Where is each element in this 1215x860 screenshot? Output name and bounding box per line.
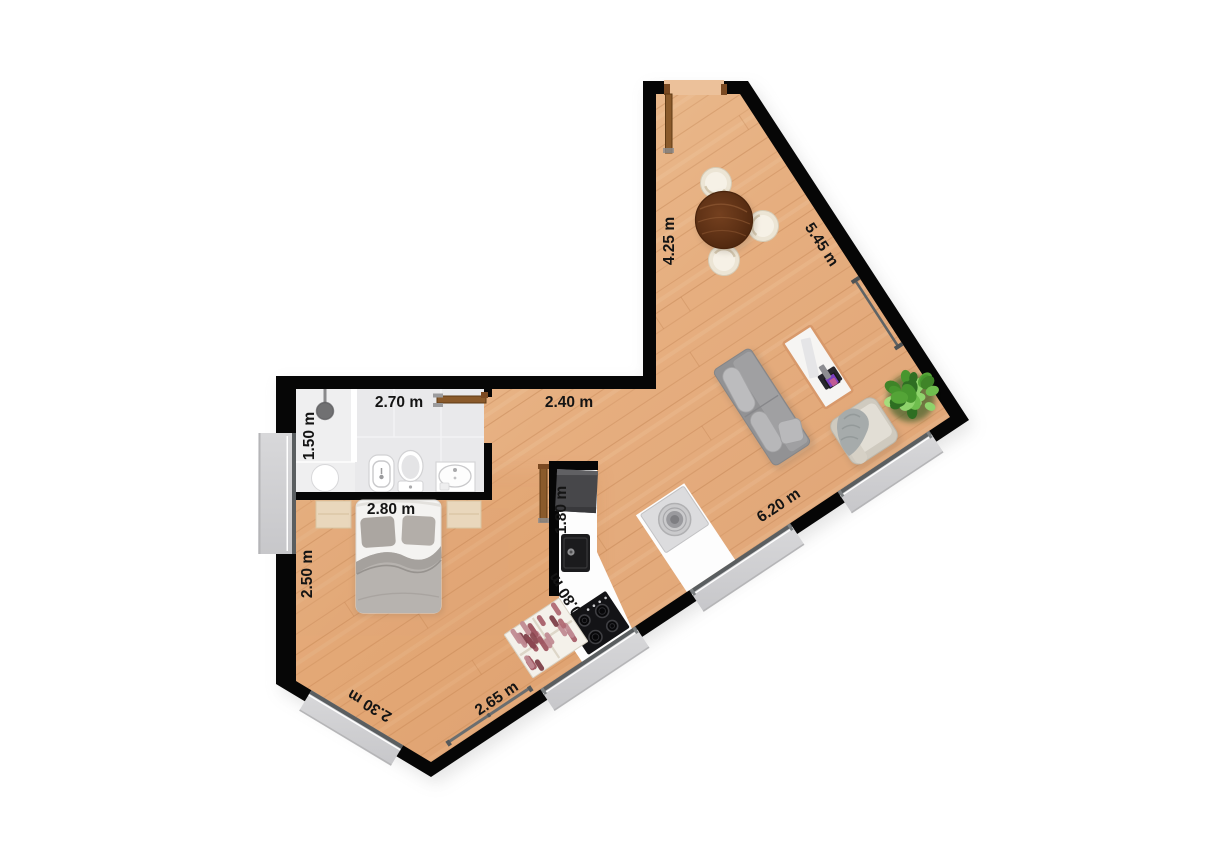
svg-text:2.80 m: 2.80 m bbox=[367, 501, 415, 518]
svg-text:4.25 m: 4.25 m bbox=[661, 217, 678, 265]
svg-text:1.50 m: 1.50 m bbox=[301, 412, 318, 460]
svg-text:2.70 m: 2.70 m bbox=[375, 394, 423, 411]
svg-text:1.80 m: 1.80 m bbox=[553, 486, 570, 534]
svg-text:2.40 m: 2.40 m bbox=[545, 394, 593, 411]
svg-text:2.50 m: 2.50 m bbox=[299, 550, 316, 598]
